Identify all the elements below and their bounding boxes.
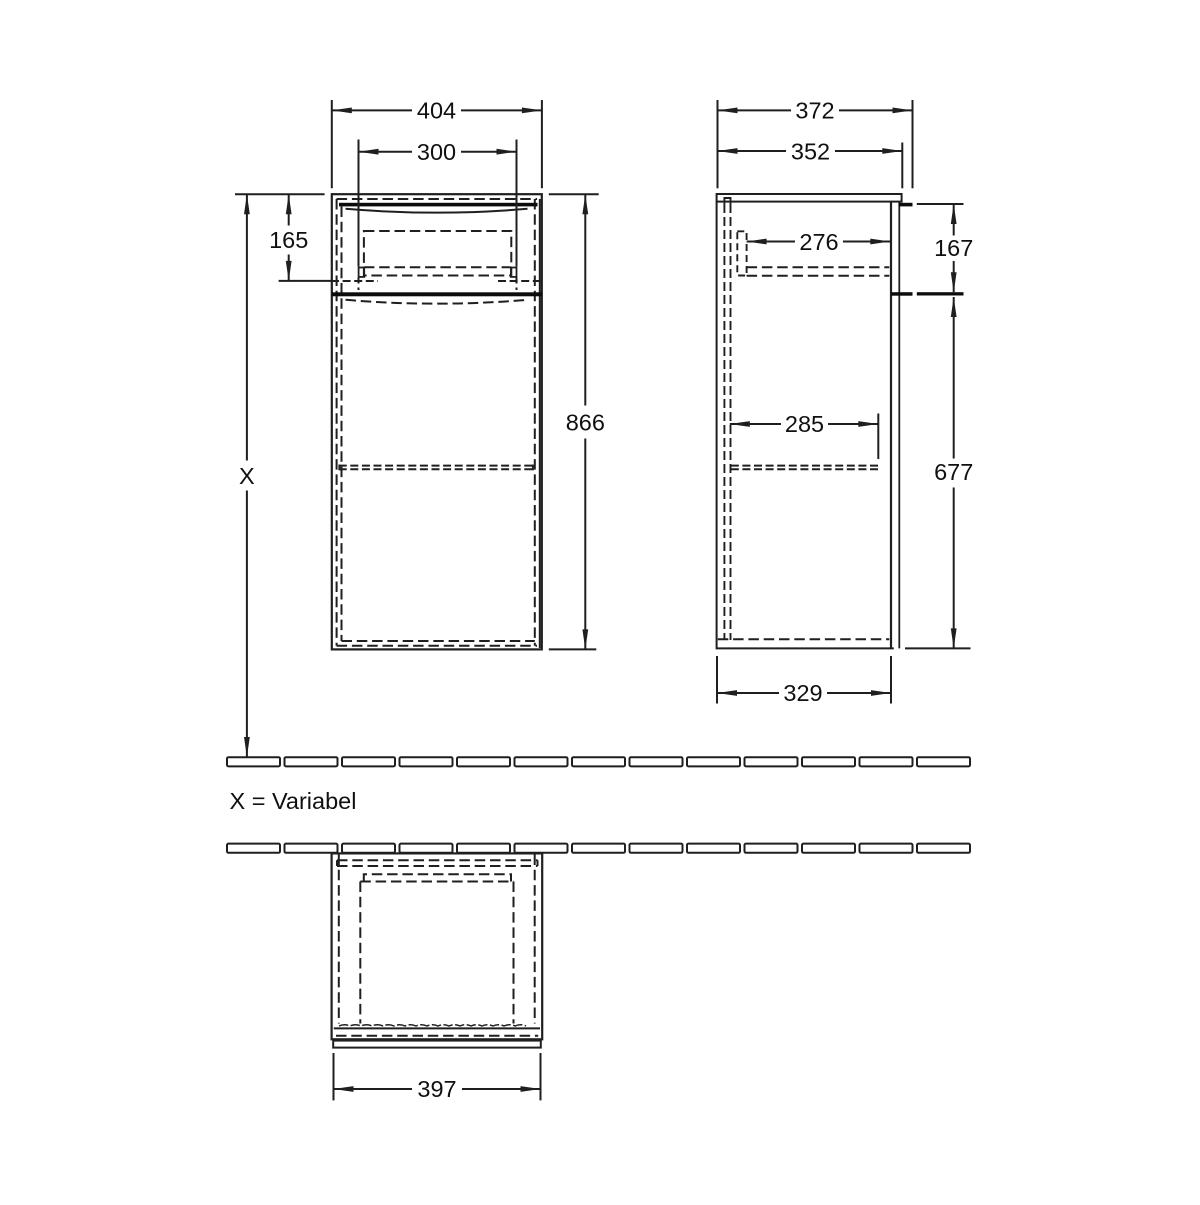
svg-text:X: X <box>239 463 255 489</box>
svg-text:285: 285 <box>785 411 824 437</box>
svg-text:677: 677 <box>934 459 973 485</box>
svg-text:397: 397 <box>417 1076 456 1102</box>
svg-text:276: 276 <box>799 229 838 255</box>
svg-text:404: 404 <box>417 98 456 124</box>
svg-text:352: 352 <box>791 138 830 164</box>
svg-text:866: 866 <box>566 409 605 435</box>
svg-text:300: 300 <box>417 139 456 165</box>
svg-text:165: 165 <box>269 227 308 253</box>
svg-text:372: 372 <box>795 98 834 124</box>
svg-text:X = Variabel: X = Variabel <box>230 788 357 814</box>
svg-text:167: 167 <box>934 235 973 261</box>
svg-text:329: 329 <box>783 680 822 706</box>
